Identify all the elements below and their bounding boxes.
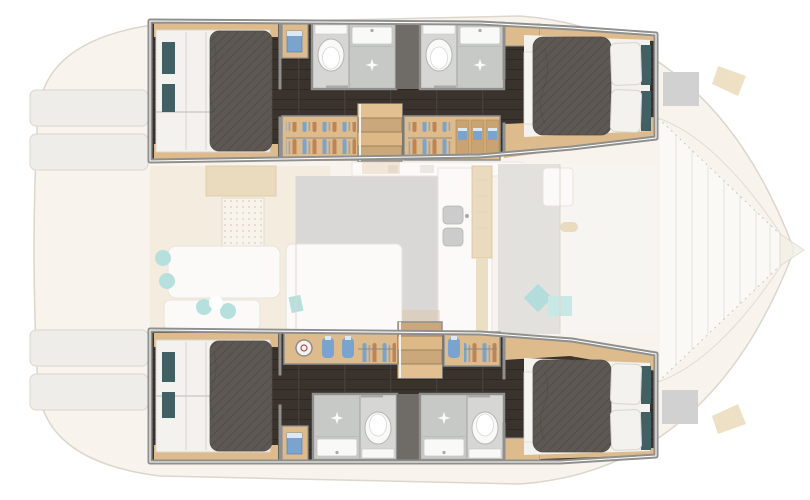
stbd-bathroom-fwd <box>420 394 504 460</box>
bathroom-bulkhead <box>396 23 420 89</box>
stbd-fwd-cabin <box>504 334 656 460</box>
port-fwd-cabin <box>504 24 656 158</box>
stbd-bathroom-aft <box>313 394 397 460</box>
port-cabinet <box>282 24 308 58</box>
stbd-wardrobe-fwd <box>444 332 500 366</box>
port-bathroom-aft <box>312 23 396 89</box>
stbd-vanity <box>284 332 398 364</box>
charcoal-duvet <box>533 360 611 452</box>
stbd-companionway-stairs <box>398 310 442 378</box>
port-aft-cabin <box>154 23 278 160</box>
stbd-cabinet <box>282 426 308 460</box>
deck-hatch-starboard <box>662 390 698 424</box>
bathroom-bulkhead <box>397 394 420 460</box>
port-companionway-stairs <box>358 104 402 174</box>
charcoal-duvet <box>210 341 272 451</box>
front-cockpit-ghost <box>498 164 656 334</box>
port-bathroom-fwd <box>420 23 504 89</box>
port-wardrobe-aft <box>282 116 360 160</box>
charcoal-duvet <box>210 31 272 151</box>
deck-hatch-port <box>663 72 699 106</box>
stbd-aft-cabin <box>154 333 278 460</box>
galley-ghost <box>438 166 492 332</box>
floorplan-page <box>0 0 810 500</box>
floorplan-canvas <box>0 0 810 500</box>
